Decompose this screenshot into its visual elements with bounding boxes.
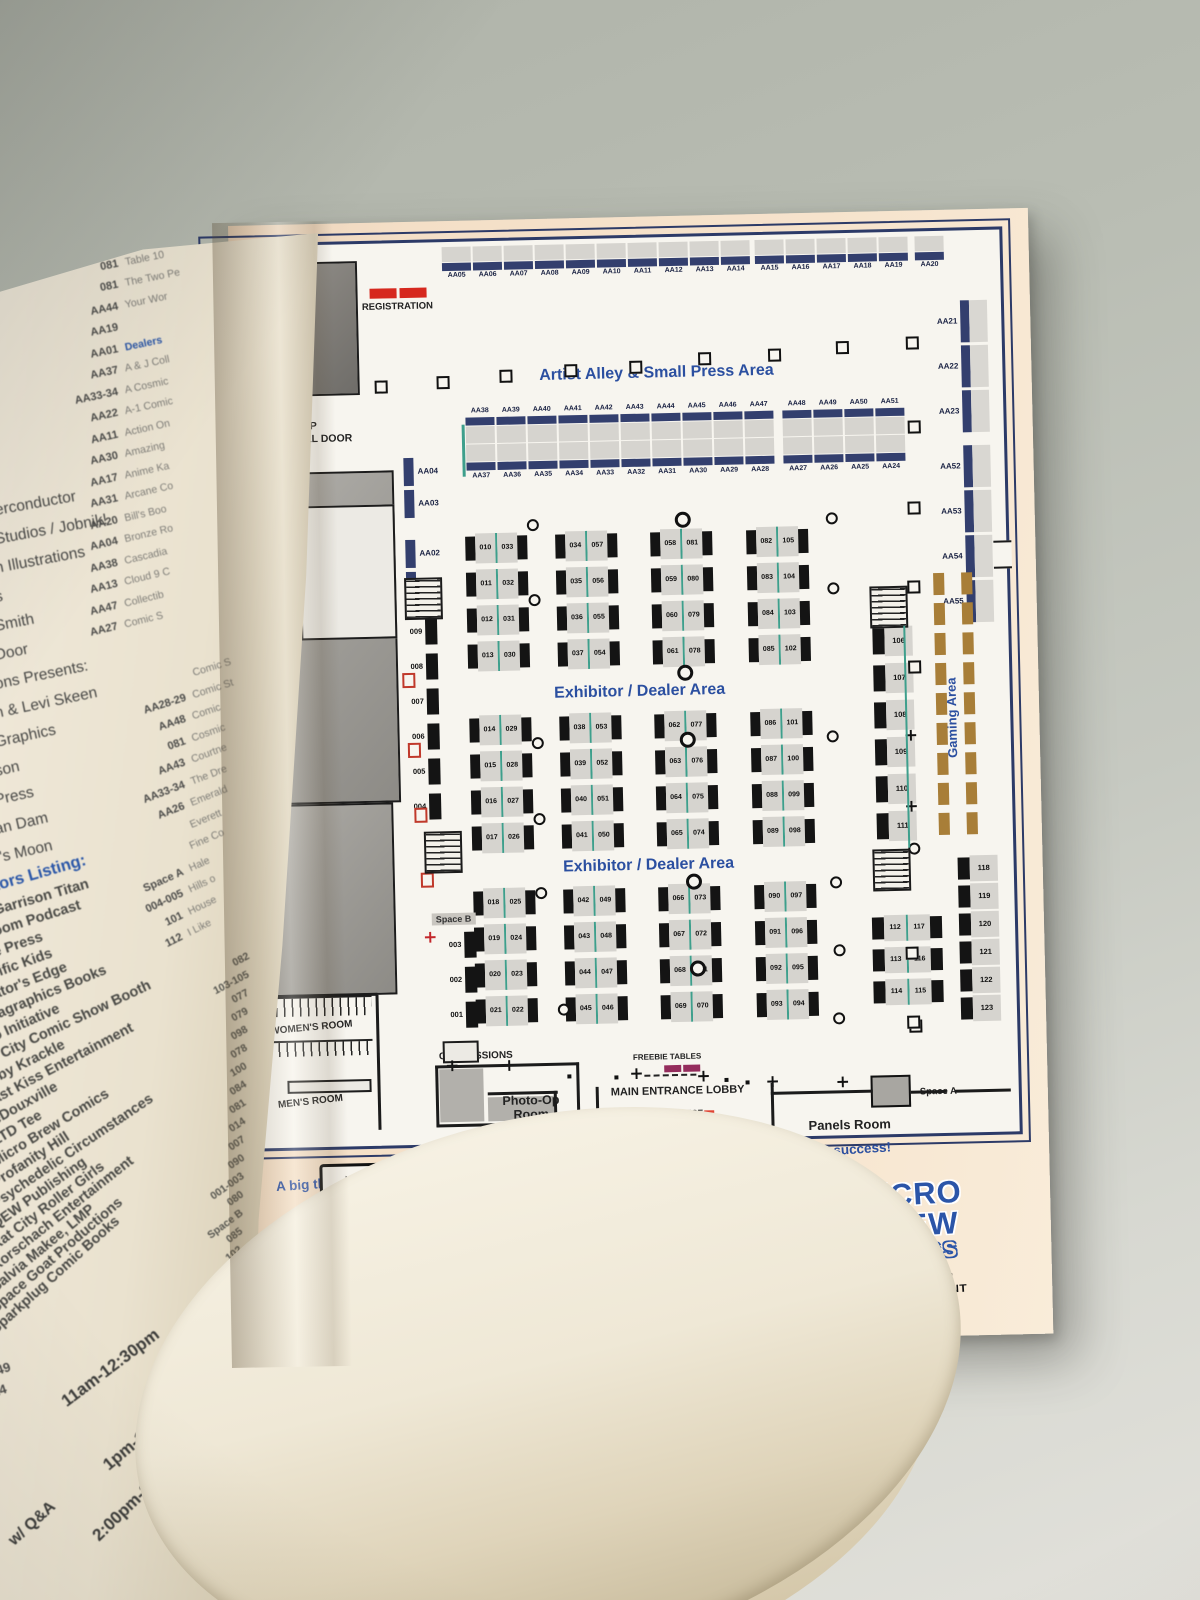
booth-005: 005 — [402, 757, 441, 786]
booths-043-048: 043048 — [564, 921, 627, 952]
gaming-table — [934, 603, 945, 625]
stairs — [872, 849, 911, 892]
booth-pair-AA51-AA24: AA51AA24 — [875, 397, 906, 473]
booth-AA17: AA17 — [816, 238, 846, 273]
booths-019-024: 019024 — [474, 923, 537, 954]
booths-037-054: 037054 — [557, 638, 620, 669]
column-marker — [629, 361, 642, 374]
island-010: 010033011032012031013030 — [465, 532, 530, 677]
booth-AA53: AA53 — [932, 490, 992, 533]
island-090: 090097091096092095093094 — [754, 881, 819, 1026]
booths-011-032: 011032 — [466, 568, 529, 599]
booth-AA06: AA06 — [473, 246, 503, 281]
booth-pair-AA46-AA29: AA46AA29 — [713, 400, 744, 476]
right-wall-booths-118: 118119120121122123 — [957, 855, 1001, 1024]
booths-014-029: 014029 — [469, 714, 532, 745]
booths-035-056: 035056 — [556, 566, 619, 597]
booths-044-047: 044047 — [565, 957, 628, 988]
column-marker — [436, 376, 449, 389]
gaming-table — [962, 632, 973, 654]
booth-pair-AA38-AA37: AA38AA37 — [465, 406, 496, 482]
gaming-table — [966, 782, 977, 804]
booths-061-078: 061078 — [652, 636, 715, 667]
column-marker — [906, 947, 919, 960]
margin-number: 14 — [0, 1381, 8, 1400]
column-marker — [908, 420, 921, 433]
stairs — [869, 586, 908, 629]
east-door-notch — [993, 540, 1012, 568]
booths-063-076: 063076 — [655, 746, 718, 777]
door-dot — [567, 1074, 571, 1078]
booth-003: 003 — [438, 931, 477, 960]
booths-114-115: 114115 — [873, 978, 944, 1006]
booth-AA15: AA15 — [754, 239, 784, 274]
column-marker — [768, 348, 781, 361]
column-marker — [564, 364, 577, 377]
gaming-table — [937, 753, 948, 775]
column-marker — [907, 501, 920, 514]
stairs — [404, 577, 443, 620]
booths-088-099: 088099 — [752, 780, 815, 811]
gaming-table — [963, 662, 974, 684]
booths-083-104: 083104 — [747, 562, 810, 593]
booth-AA21: AA21 — [928, 300, 988, 343]
island-042: 042049043048044047045046 — [563, 885, 628, 1030]
utility-cross — [629, 1067, 643, 1081]
column-marker — [836, 341, 849, 354]
booth-pair-AA42-AA33: AA42AA33 — [589, 403, 620, 479]
booth-pair-AA44-AA31: AA44AA31 — [651, 402, 682, 478]
booths-039-052: 039052 — [560, 748, 623, 779]
booths-012-031: 012031 — [467, 604, 530, 635]
registration-tables — [369, 288, 426, 299]
qa-note: w/ Q&A — [5, 1498, 59, 1549]
booth-120: 120 — [959, 911, 1000, 938]
gaming-table — [966, 812, 977, 834]
space-b-label: Space B — [432, 913, 476, 926]
booths-016-027: 016027 — [471, 786, 534, 817]
concessions-area — [439, 1068, 484, 1122]
booth-pair-AA43-AA32: AA43AA32 — [620, 402, 651, 478]
booths-086-101: 086101 — [750, 708, 813, 739]
booth-AA11: AA11 — [627, 242, 657, 277]
exhibitor-name-fragments: erconductorStudios / Jobnik!n Illustrati… — [0, 501, 110, 878]
alley-group-3: AA48AA27AA49AA26AA50AA25AA51AA24 — [782, 397, 906, 475]
booths-069-070: 069070 — [660, 991, 723, 1022]
booth-pair-AA50-AA25: AA50AA25 — [844, 397, 875, 473]
booths-112-117: 112117 — [872, 914, 943, 942]
column-marker — [908, 660, 921, 673]
column-marker — [907, 580, 920, 593]
right-wall-aa-upper: AA21AA22AA23 — [928, 300, 990, 436]
booth-121: 121 — [959, 939, 1000, 966]
margin-number: 49 — [0, 1359, 12, 1378]
booths-021-022: 021022 — [476, 995, 539, 1026]
fire-door — [414, 808, 427, 823]
booths-015-028: 015028 — [470, 750, 533, 781]
column-marker — [698, 352, 711, 365]
registration-label: REGISTRATION — [362, 300, 433, 313]
booth-AA14: AA14 — [720, 240, 750, 275]
booth-AA20: AA20 — [914, 236, 944, 271]
booth-AA18: AA18 — [847, 237, 877, 272]
floor-plan: REGISTRATION LOADING RAMP 18'W x 9'H ROL… — [228, 208, 1049, 1156]
island-112: 112117113116114115 — [872, 914, 944, 1012]
booths-084-103: 084103 — [748, 598, 811, 629]
booths-089-098: 089098 — [753, 816, 816, 847]
inner-room — [298, 504, 397, 640]
booth-AA22: AA22 — [929, 345, 989, 388]
booths-093-094: 093094 — [756, 989, 819, 1020]
booth-122: 122 — [960, 967, 1001, 994]
panels-room-label: Panels Room — [808, 1116, 891, 1133]
booths-034-057: 034057 — [555, 530, 618, 561]
booth-pair-AA49-AA26: AA49AA26 — [813, 398, 844, 474]
column-marker — [499, 370, 512, 383]
column-marker — [375, 380, 388, 393]
booth-001: 001 — [440, 1001, 479, 1030]
door-dot — [724, 1078, 728, 1082]
booths-017-026: 017026 — [472, 822, 535, 853]
booth-pair-AA45-AA30: AA45AA30 — [682, 401, 713, 477]
freebie-table — [664, 1065, 681, 1072]
booths-092-095: 092095 — [756, 953, 819, 984]
gaming-table — [936, 723, 947, 745]
booth-AA19: AA19 — [878, 237, 908, 272]
mens-room-counter — [287, 1079, 371, 1094]
column-marker — [907, 1016, 920, 1029]
freebie-tables-label: FREEBIE TABLES — [633, 1051, 701, 1062]
booth-106: 106 — [872, 626, 913, 657]
booths-040-051: 040051 — [561, 784, 624, 815]
fire-door — [402, 673, 415, 688]
freebie-table — [683, 1065, 700, 1072]
booths-059-080: 059080 — [651, 564, 714, 595]
booths-018-025: 018025 — [473, 887, 536, 918]
gaming-table — [934, 633, 945, 655]
island-082: 082105083104084103085102 — [746, 526, 811, 671]
gaming-table — [938, 783, 949, 805]
booth-AA07: AA07 — [504, 245, 534, 280]
creators-list: Garrison Titanoom Podcaste Pressrific Ki… — [0, 902, 186, 1343]
column-marker — [906, 336, 919, 349]
fire-door — [421, 872, 434, 887]
booth-pair-AA41-AA34: AA41AA34 — [558, 404, 589, 480]
alley-group-2: AA43AA32AA44AA31AA45AA30AA46AA29AA47AA28 — [620, 400, 775, 478]
booth-AA05: AA05 — [442, 247, 472, 282]
gaming-table — [962, 602, 973, 624]
island-018: 018025019024020023021022 — [473, 887, 538, 1032]
booths-020-023: 020023 — [475, 959, 538, 990]
booth-118: 118 — [957, 855, 998, 882]
booths-013-030: 013030 — [467, 640, 530, 671]
gaming-table — [961, 572, 972, 594]
photo-of-program-booklet: REGISTRATION LOADING RAMP 18'W x 9'H ROL… — [0, 0, 1200, 1600]
top-booth-row-4: AA20 — [914, 236, 944, 271]
booths-090-097: 090097 — [754, 881, 817, 912]
booths-058-081: 058081 — [650, 528, 713, 559]
gaming-table — [964, 692, 975, 714]
utility-cross — [835, 1075, 849, 1089]
booth-AA23: AA23 — [930, 390, 990, 433]
island-034: 034057035056036055037054 — [555, 530, 620, 675]
booth-pair-AA48-AA27: AA48AA27 — [782, 399, 813, 475]
fire-door — [408, 743, 421, 758]
gaming-table — [933, 573, 944, 595]
booths-065-074: 065074 — [657, 818, 720, 849]
booth-AA52: AA52 — [931, 445, 991, 488]
island-066: 066073067072068071069070 — [658, 883, 723, 1028]
booths-038-053: 038053 — [559, 712, 622, 743]
booths-041-050: 041050 — [562, 820, 625, 851]
left-wall-booths: 009008007006005004 — [399, 617, 442, 828]
booth-pair-AA47-AA28: AA47AA28 — [744, 400, 775, 476]
booth-AA04: AA04 — [403, 457, 438, 486]
utility-cross-red — [423, 930, 437, 944]
booths-085-102: 085102 — [748, 634, 811, 665]
stairs — [424, 831, 463, 874]
booths-036-055: 036055 — [557, 602, 620, 633]
creators-listing-block: tors Listing: Garrison Titanoom Podcaste… — [0, 877, 186, 1343]
booths-067-072: 067072 — [659, 919, 722, 950]
top-booth-row-1: AA05AA06AA07AA08AA09 — [442, 244, 596, 281]
booth-009: 009 — [399, 617, 438, 646]
gaming-table — [935, 663, 946, 685]
booth-pair-AA39-AA36: AA39AA36 — [496, 405, 527, 481]
booth-AA09: AA09 — [566, 244, 596, 279]
booths-082-105: 082105 — [746, 526, 809, 557]
island-086: 086101087100088099089098 — [750, 708, 815, 853]
space-b-booths: 003002001 — [438, 931, 478, 1037]
booth-AA03: AA03 — [404, 489, 439, 518]
booth-119: 119 — [958, 883, 999, 910]
booths-045-046: 045046 — [566, 993, 629, 1024]
gaming-table — [964, 722, 975, 744]
left-wall-aa-upper: AA04AA03 — [403, 457, 439, 522]
booths-060-079: 060079 — [652, 600, 715, 631]
booth-AA08: AA08 — [535, 244, 565, 279]
alley-group-1: AA38AA37AA39AA36AA40AA35AA41AA34AA42AA33 — [465, 403, 620, 481]
booth-002: 002 — [439, 966, 478, 995]
gaming-table — [939, 813, 950, 835]
booths-064-075: 064075 — [656, 782, 719, 813]
booth-007: 007 — [401, 687, 440, 716]
gaming-table — [965, 752, 976, 774]
space-a-block — [870, 1075, 911, 1108]
gaming-table — [936, 693, 947, 715]
booth-AA13: AA13 — [689, 241, 719, 276]
booths-010-033: 010033 — [465, 532, 528, 563]
booth-pair-AA40-AA35: AA40AA35 — [527, 405, 558, 481]
island-014: 014029015028016027017026 — [469, 714, 534, 859]
booth-AA10: AA10 — [596, 243, 626, 278]
door-dot — [746, 1080, 750, 1084]
top-booth-row-3: AA15AA16AA17AA18AA19 — [754, 237, 908, 274]
booth-AA02: AA02 — [405, 539, 440, 568]
booth-AA12: AA12 — [658, 242, 688, 277]
booths-087-100: 087100 — [751, 744, 814, 775]
booth-AA16: AA16 — [785, 239, 815, 274]
island-058: 058081059080060079061078 — [650, 528, 715, 673]
booth-123: 123 — [961, 995, 1002, 1022]
top-booth-row-2: AA10AA11AA12AA13AA14 — [596, 240, 750, 277]
door-dot — [614, 1075, 618, 1079]
booths-091-096: 091096 — [755, 917, 818, 948]
island-038: 038053039052040051041050 — [559, 712, 624, 857]
booths-042-049: 042049 — [563, 885, 626, 916]
